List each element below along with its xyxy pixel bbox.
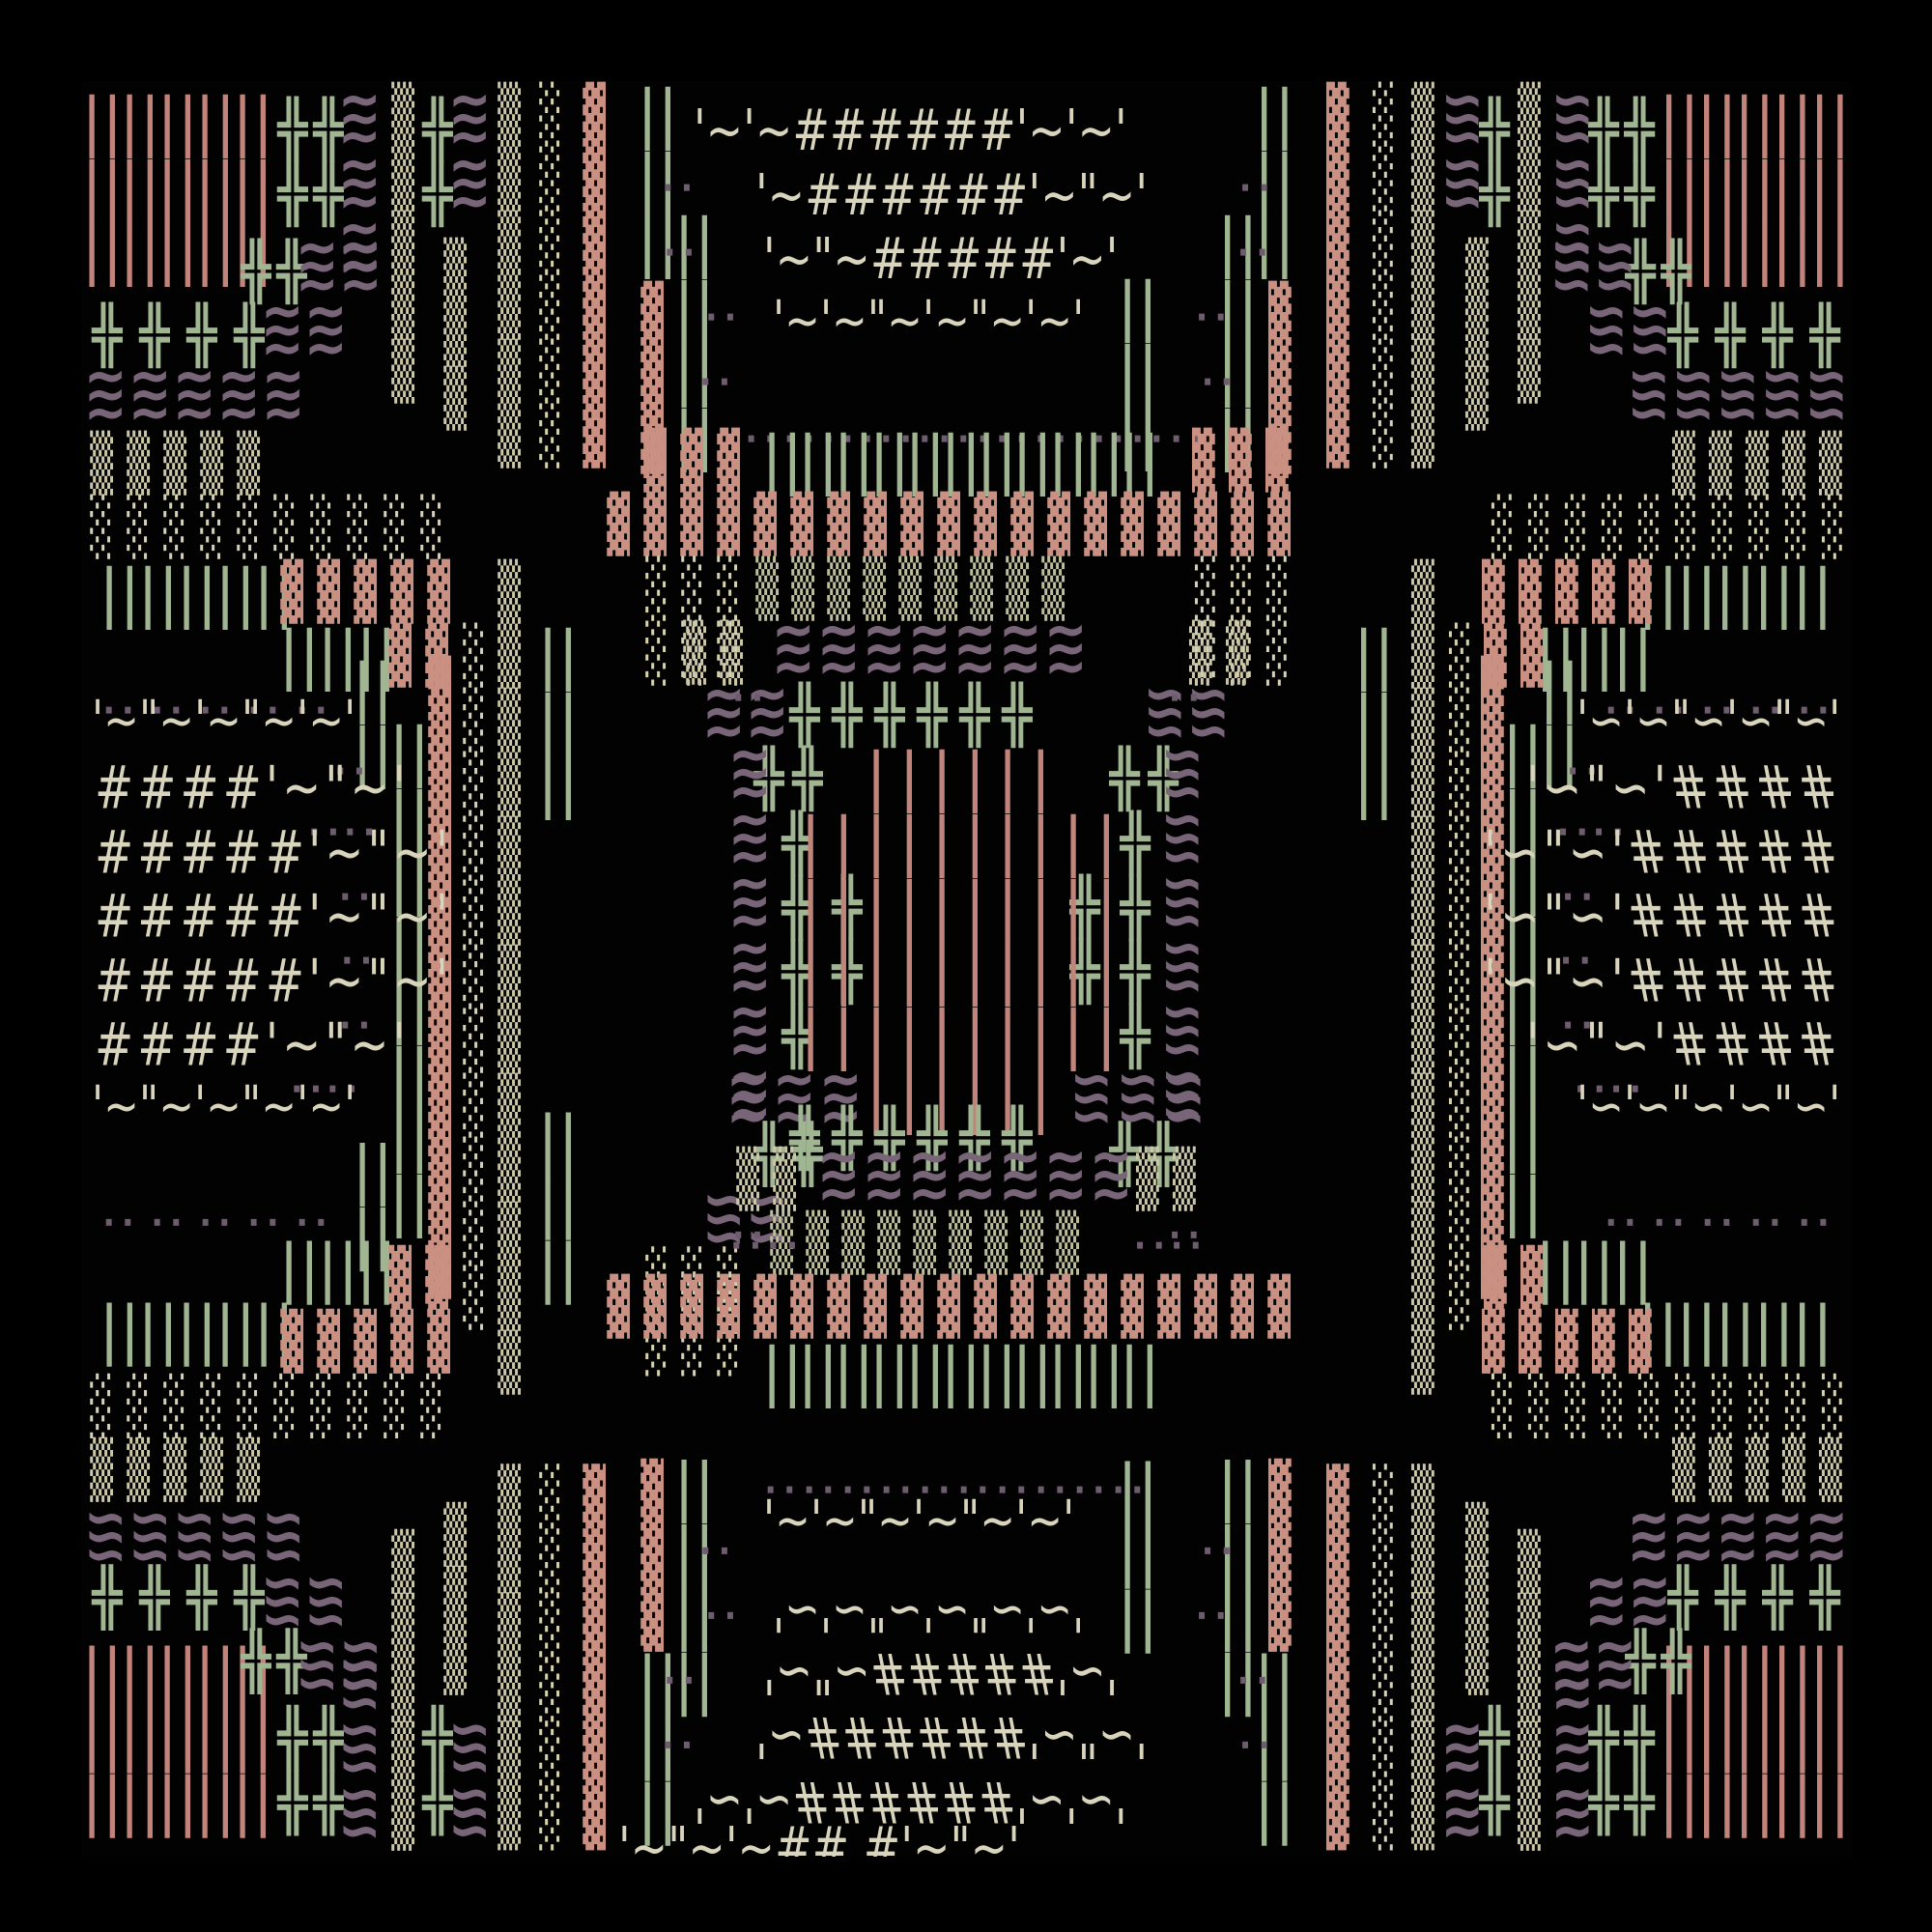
bottom-extra-quote-row: '~'~"~'~"~'~' xyxy=(763,1490,1074,1539)
dot-pair-icon: .. xyxy=(1240,1650,1269,1725)
dot-pair-icon: .. xyxy=(193,1192,241,1267)
top-text-row-3: '~"~#####'~' xyxy=(763,225,1118,277)
corner-wave-col-b: ~~~~~~ xyxy=(446,91,493,219)
band-green-row-mxy: |||||||||| xyxy=(1638,1306,1832,1371)
double-bar-icon: || xyxy=(1232,1451,1257,1528)
top-text-row-1: '~'~######'~'~' xyxy=(694,97,1127,149)
dot-pair-icon: .. xyxy=(698,1520,727,1596)
dense-shade-icon: ▓ xyxy=(1325,1452,1356,1528)
light-shade-icon: ░ xyxy=(1258,622,1293,698)
double-bar-icon: || xyxy=(178,562,216,639)
double-bar-icon: || xyxy=(1811,1636,1849,1714)
top-text-row-2-my: '~######'~"~' xyxy=(755,1719,1148,1771)
double-bar-icon: || xyxy=(1049,1341,1085,1418)
band-salmon-row-my: ▓▓▓▓▓ xyxy=(273,1308,457,1373)
center-green-row-bottom: |||||||||||||||||||||| xyxy=(763,1341,1156,1406)
dense-shade-icon: ▓ xyxy=(1114,493,1151,569)
double-cross-icon: ╬ xyxy=(1481,1687,1517,1772)
double-bar-icon: || xyxy=(1754,1293,1793,1371)
dot-pair-icon: .. xyxy=(698,337,727,412)
left-text-quote-bottom: '~"~'~"~'~' xyxy=(92,1075,355,1124)
mid-sparse-col: ░░░░░░░░░░░ xyxy=(456,624,493,1331)
double-bar-icon: || xyxy=(835,1341,870,1418)
mid-dense-col: ▒▒▒▒▒▒▒▒▒▒▒▒▒ xyxy=(491,560,527,1396)
corner-salmon-col-mxy: ▓▓▓▓▓▓ xyxy=(1325,1463,1356,1849)
dot-pair-icon: .. xyxy=(1172,653,1201,728)
dot-pair-icon: .. xyxy=(1242,1715,1271,1790)
left-text-hash-4-mx: #####'~"~' xyxy=(1480,947,1837,1001)
flank-salmon-col-my: ▓▓▓ xyxy=(634,1458,665,1651)
center-dot-bottom-mx: .... xyxy=(1129,1201,1203,1265)
dot-pair-d-mxy: .. xyxy=(1205,1531,1234,1596)
corner-dense-col-b-mx: ▒▒▒▒▒▒ xyxy=(1405,83,1441,469)
dense-shade-icon: ▓ xyxy=(1187,1275,1224,1351)
flank-salmon-col-mxy: ▓▓▓ xyxy=(1267,1458,1298,1651)
dot-pair-b-mx: .. xyxy=(1240,208,1269,272)
corner-wave-row: ~~~~~~~~~~~~~~~ xyxy=(83,367,305,432)
dot-pair-icon: .. xyxy=(1642,1192,1690,1267)
medium-shade-icon: ▒ xyxy=(1511,1517,1548,1593)
band-salmon-row-mxy: ▓▓▓▓▓ xyxy=(1475,1308,1659,1373)
left-text-hash-1: ####'~"~' xyxy=(95,753,410,808)
dot-pair-icon: .. xyxy=(1199,1585,1228,1661)
corner-cross-a: ╬╬╬╬ xyxy=(270,97,342,225)
double-bar-icon: || xyxy=(1368,753,1393,830)
light-shade-icon: ░ xyxy=(532,405,569,481)
triple-wave-icon: ~~~ xyxy=(261,367,305,453)
double-bar-icon: || xyxy=(100,562,139,639)
corner-wave-col-b-mx: ~~~~~~ xyxy=(1439,91,1486,219)
double-bar-icon: || xyxy=(942,1341,978,1418)
double-bar-icon: || xyxy=(158,1636,196,1714)
double-bar-icon: || xyxy=(870,1341,906,1418)
dense-shade-icon: ▓ xyxy=(600,1275,637,1351)
dense-shade-icon: ▓ xyxy=(1224,1275,1261,1351)
dense-shade-icon: ▓ xyxy=(1480,1236,1511,1312)
spaced-bar-icon: || xyxy=(867,746,933,823)
top-text-row-3-my: '~"~#####'~' xyxy=(763,1655,1118,1707)
light-shade-icon: ░ xyxy=(639,622,674,698)
double-cross-icon: ╬ xyxy=(825,682,867,767)
double-bar-icon: || xyxy=(1736,219,1774,297)
flank-green-col-a-mxy: |||||| xyxy=(1268,1657,1293,1850)
triple-wave-icon: ~~~ xyxy=(1584,302,1628,388)
double-bar-icon: || xyxy=(1774,1636,1811,1714)
double-bar-icon: || xyxy=(1736,1636,1774,1714)
band-sparse-row-mxy: ░░░░░░░░░░ xyxy=(1482,1373,1849,1437)
corner-wave-row-mx: ~~~~~~~~~~~~~~~ xyxy=(1627,367,1849,432)
double-bar-icon: || xyxy=(675,1451,700,1528)
corner-salmon-col: ▓▓▓▓▓▓ xyxy=(576,83,607,469)
dot-pair-icon: .. xyxy=(1240,208,1269,283)
dense-shade-icon: ▓ xyxy=(576,405,607,481)
dot-pair-icon: .. xyxy=(1205,337,1234,412)
dot-pair-icon: .. xyxy=(661,143,690,218)
medium-shade-icon: ▒ xyxy=(491,405,527,481)
double-bar-icon: || xyxy=(906,1341,942,1418)
dot-pair-a-mx: .. xyxy=(1242,143,1271,208)
dot-pair-icon: .. xyxy=(290,1192,338,1267)
triple-wave-icon: ~~~ xyxy=(1439,156,1486,241)
left-text-quote-top-mx: '~"~'~"~'~' xyxy=(1577,690,1840,739)
corner-wave-row-mxy: ~~~~~~~~~~~~~~~ xyxy=(1627,1501,1849,1566)
dot-pair-b: .. xyxy=(663,208,692,272)
double-bar-icon: || xyxy=(354,1134,379,1211)
dot-pair-icon: .. xyxy=(704,1585,733,1661)
triple-wave-icon: ~~~ xyxy=(304,302,348,388)
double-bar-icon: || xyxy=(100,1293,139,1371)
dense-shade-icon: ▓ xyxy=(1261,1275,1297,1351)
center-green-row: |||||||||||||||||||||| xyxy=(763,429,1156,494)
corner-wave-col-b-mxy: ~~~~~~ xyxy=(1439,1713,1486,1841)
corner-dense-col-b: ▒▒▒▒▒▒ xyxy=(491,83,527,469)
medium-shade-icon: ▒ xyxy=(1459,1490,1495,1566)
margin-mask-bottom xyxy=(0,1857,1932,1932)
left-text-hash-3-mx: #####'~"~' xyxy=(1480,882,1837,936)
dot-pair-icon: .. xyxy=(1205,1520,1234,1596)
double-bar-icon: || xyxy=(539,753,564,830)
medium-shade-icon: ▒ xyxy=(1459,367,1495,443)
corner-cross-col-b-mx: ╬╬ xyxy=(1481,97,1517,225)
dot-pair-b-my: .. xyxy=(663,1661,692,1725)
dot-pair-c-my: .. xyxy=(704,1596,733,1661)
band-dense-row: ▒▒▒▒▒ xyxy=(83,432,267,497)
dot-pair-d: .. xyxy=(698,337,727,402)
band-sparse-row-my: ░░░░░░░░░░ xyxy=(83,1373,450,1437)
dot-pair-icon: .. xyxy=(1072,1445,1111,1520)
dot-pair-icon: .. xyxy=(1166,1201,1203,1276)
double-bar-icon: || xyxy=(196,1636,234,1714)
dot-pair-a-my: .. xyxy=(661,1725,690,1790)
left-text-hash-1-mx: ####'~"~' xyxy=(1522,753,1837,808)
triple-wave-icon: ~~~ xyxy=(1439,1691,1486,1777)
band-dense-row-my: ▒▒▒▒▒ xyxy=(83,1436,267,1501)
mid-green-col-e-my: |||||| xyxy=(539,1116,564,1309)
left-text-hash-5-mx: ####'~"~' xyxy=(1522,1010,1837,1065)
light-shade-icon: ░ xyxy=(532,1452,569,1528)
dot-pair-icon: .. xyxy=(661,1715,690,1790)
double-bar-icon: || xyxy=(139,1293,178,1371)
mid-green-col-e: |||||| xyxy=(539,624,564,817)
spaced-bar-icon: || xyxy=(999,746,1065,823)
dot-pair-b-mxy: .. xyxy=(1240,1661,1269,1725)
triple-wave-icon: ~~~ xyxy=(1584,1545,1628,1631)
double-bar-icon: || xyxy=(158,219,196,297)
medium-shade-icon: ▒ xyxy=(384,1517,421,1593)
medium-shade-icon: ▒ xyxy=(437,367,473,443)
dense-shade-icon: ▓ xyxy=(1151,493,1187,569)
center-wave-band: ~~~~~~~~~~~~~~~~~~~~~ xyxy=(771,621,1089,686)
double-bar-icon: || xyxy=(1754,562,1793,639)
center-dot-pair-mx: .. xyxy=(1172,653,1201,718)
margin-mask-left xyxy=(0,0,81,1932)
double-bar-icon: || xyxy=(83,1636,121,1714)
corner-dense-col-b-mxy: ▒▒▒▒▒▒ xyxy=(1405,1463,1441,1849)
top-text-row-4: '~'~"~'~"~'~' xyxy=(773,290,1084,339)
center-salmon-flank-mx: ▓▓▓ xyxy=(1185,429,1295,494)
corner-dense-bit: ▒▒▒ xyxy=(437,239,473,432)
medium-shade-icon: ▒ xyxy=(1405,1452,1441,1528)
margin-mask-top xyxy=(0,0,1932,81)
dense-shade-icon: ▓ xyxy=(600,493,637,569)
double-bar-icon: || xyxy=(1085,1341,1121,1418)
dot-pair-icon: .. xyxy=(731,653,760,728)
dense-shade-icon: ▓ xyxy=(576,1452,607,1528)
medium-shade-icon: ▒ xyxy=(491,1331,527,1407)
corner-salmon-col-my: ▓▓▓▓▓▓ xyxy=(576,1463,607,1849)
center-bars-top: |||||| xyxy=(867,746,1065,810)
triple-wave-icon: ~~~ xyxy=(446,156,493,241)
center-cross-row: ╬╬╬╬╬╬ xyxy=(782,682,1037,747)
center-salmon-flank: ▓▓▓ xyxy=(637,429,747,494)
corner-wave-col-b-my: ~~~~~~ xyxy=(446,1713,493,1841)
dense-shade-icon: ▓ xyxy=(637,1275,673,1351)
band-green-row-my: |||||||||| xyxy=(100,1306,294,1371)
dot-pair-d-my: .. xyxy=(698,1531,727,1596)
corner-dense-bit-my: ▒▒▒ xyxy=(437,1501,473,1694)
top-text-row-4-my: '~'~"~'~"~'~' xyxy=(773,1593,1084,1642)
double-bar-icon: || xyxy=(216,1293,255,1371)
left-text-hash-3: #####'~"~' xyxy=(95,882,452,936)
corner-cross-a-mx: ╬╬╬╬ xyxy=(1590,97,1662,225)
dot-pair-a: .. xyxy=(661,143,690,208)
double-bar-icon: || xyxy=(390,1171,415,1248)
double-bar-icon: || xyxy=(1013,1341,1049,1418)
corner-sparse-col-mxy: ░░░░░░ xyxy=(1363,1463,1400,1849)
medium-shade-icon: ▒ xyxy=(491,1452,527,1528)
mid-green-col-e-mx: |||||| xyxy=(1368,624,1393,817)
left-text-hash-4: #####'~"~' xyxy=(95,947,452,1001)
dot-pair-icon: .. xyxy=(1242,143,1271,218)
double-bar-icon: || xyxy=(1774,219,1811,297)
medium-shade-icon: ▒ xyxy=(384,340,421,416)
band-dense-row-mxy: ▒▒▒▒▒ xyxy=(1665,1436,1849,1501)
light-shade-icon: ░ xyxy=(456,1266,493,1343)
band-green-row-mx: |||||||||| xyxy=(1638,562,1832,627)
dot-pair-icon: .. xyxy=(766,1201,803,1276)
corner-sparse-col-mx: ░░░░░░ xyxy=(1363,83,1400,469)
medium-shade-icon: ▒ xyxy=(1405,1331,1441,1407)
dot-pair-d-mx: .. xyxy=(1205,337,1234,402)
top-text-row-2: '~######'~"~' xyxy=(755,161,1148,213)
double-bar-icon: || xyxy=(1716,562,1754,639)
double-bar-icon: || xyxy=(1677,1293,1716,1371)
light-shade-icon: ░ xyxy=(1363,1452,1400,1528)
band-sparse-row: ░░░░░░░░░░ xyxy=(83,496,450,560)
ascii-quilt-artwork: generative ascii textile quilt pattern |… xyxy=(0,0,1932,1932)
mid-green-col-c-my: |||| xyxy=(354,1147,379,1275)
dot-pair-icon: .. xyxy=(1787,1192,1835,1267)
dense-shade-icon: ▓ xyxy=(1325,405,1356,481)
dot-pair-c-mxy: .. xyxy=(1199,1596,1228,1661)
flank-green-col-a-mx: |||||| xyxy=(1268,83,1293,276)
light-shade-icon: ░ xyxy=(1439,1266,1476,1343)
band-green-row: |||||||||| xyxy=(100,562,294,627)
band-salmon-row: ▓▓▓▓▓ xyxy=(273,560,457,625)
double-bar-icon: || xyxy=(1793,562,1832,639)
corner-sparse-col: ░░░░░░ xyxy=(532,83,569,469)
mid-sparse-col-mx: ░░░░░░░░░░░ xyxy=(1439,624,1476,1331)
double-bar-icon: || xyxy=(799,1341,835,1418)
double-bar-icon: || xyxy=(1716,1293,1754,1371)
text-dot-row-mxy: .......... xyxy=(1594,1203,1835,1267)
dot-pair-icon: .. xyxy=(97,1192,145,1267)
double-bar-icon: || xyxy=(121,219,158,297)
double-bar-icon: || xyxy=(196,219,234,297)
dense-shade-icon: ▓ xyxy=(673,1275,710,1351)
dot-pair-icon: .. xyxy=(1594,1192,1642,1267)
dense-shade-icon: ▓ xyxy=(634,1446,665,1522)
double-bar-icon: || xyxy=(1811,219,1849,297)
center-salmon-band-bottom: ▓▓▓▓▓▓▓▓▓▓▓▓▓▓▓▓▓▓▓ xyxy=(600,1275,1297,1340)
text-dot-row-my: .......... xyxy=(97,1203,338,1267)
dot-pair-icon: .. xyxy=(1199,272,1228,348)
center-wave-band-bottom: ~~~~~~~~~~~~~~~~~~~~~ xyxy=(816,1148,1134,1212)
medium-shade-icon: ▒ xyxy=(1405,405,1441,481)
dot-pair-icon: .. xyxy=(241,1192,290,1267)
center-salmon-band: ▓▓▓▓▓▓▓▓▓▓▓▓▓▓▓▓▓▓▓ xyxy=(600,493,1297,557)
double-bar-icon: || xyxy=(763,1341,799,1418)
double-bar-icon: || xyxy=(121,1636,158,1714)
dot-pair-c: .. xyxy=(704,272,733,337)
double-bar-icon: || xyxy=(1677,562,1716,639)
dense-shade-icon: ▓ xyxy=(1077,493,1114,569)
band-salmon-row-mx: ▓▓▓▓▓ xyxy=(1475,560,1659,625)
dot-pair-a-mxy: .. xyxy=(1242,1725,1271,1790)
dense-shade-icon: ▓ xyxy=(1267,1446,1298,1522)
double-bar-icon: || xyxy=(1517,1171,1542,1248)
band-sparse-row-mx: ░░░░░░░░░░ xyxy=(1482,496,1849,560)
double-bar-icon: || xyxy=(1698,1636,1736,1714)
dot-pair-icon: .. xyxy=(1739,1192,1787,1267)
corner-cross-a-my: ╬╬╬╬ xyxy=(270,1707,342,1835)
double-bar-icon: || xyxy=(216,562,255,639)
center-dot-bottom: .... xyxy=(729,1201,803,1265)
corner-salmon-col-mx: ▓▓▓▓▓▓ xyxy=(1325,83,1356,469)
triple-wave-icon: ~~~ xyxy=(446,1691,493,1777)
double-bar-icon: || xyxy=(178,1293,216,1371)
corner-cross-a-mxy: ╬╬╬╬ xyxy=(1590,1707,1662,1835)
left-text-hash-2-mx: #####'~"~' xyxy=(1480,818,1837,872)
corner-sparse-col-my: ░░░░░░ xyxy=(532,1463,569,1849)
corner-dense-bit-mxy: ▒▒▒ xyxy=(1459,1501,1495,1694)
left-text-quote-top: '~"~'~"~'~' xyxy=(92,690,355,739)
spaced-bar-icon: || xyxy=(933,746,999,823)
center-sage-band-bottom: ▒▒▒▒▒▒▒▒▒ xyxy=(763,1211,1085,1276)
triple-wave-icon: ~~~ xyxy=(1043,621,1089,707)
band-dense-row-mx: ▒▒▒▒▒ xyxy=(1665,432,1849,497)
center-dot-pair: .. xyxy=(731,653,760,718)
center-wave-corner-mx: ~~~~~~~~~ xyxy=(1068,1070,1207,1135)
left-text-hash-5: ####'~"~' xyxy=(95,1010,410,1065)
corner-dense-col-b-my: ▒▒▒▒▒▒ xyxy=(491,1463,527,1849)
dot-pair-icon: .. xyxy=(704,272,733,348)
dot-pair-icon: .. xyxy=(663,1650,692,1725)
dense-shade-icon: ▓ xyxy=(421,1236,452,1312)
double-bar-icon: || xyxy=(139,562,178,639)
left-text-hash-2: #####'~"~' xyxy=(95,818,452,872)
dot-pair-icon: .. xyxy=(1111,1445,1150,1520)
dot-pair-icon: .. xyxy=(145,1192,193,1267)
dot-pair-icon: .. xyxy=(663,208,692,283)
medium-shade-icon: ▒ xyxy=(1511,340,1548,416)
double-bar-icon: || xyxy=(1793,1293,1832,1371)
corner-cross-col-b-mxy: ╬╬ xyxy=(1481,1707,1517,1835)
dot-pair-icon: .. xyxy=(1129,1201,1166,1276)
light-shade-icon: ░ xyxy=(1363,405,1400,481)
dot-pair-icon: .. xyxy=(1690,1192,1739,1267)
corner-wave-row-my: ~~~~~~~~~~~~~~~ xyxy=(83,1501,305,1566)
center-bars: |||||||||||||||||||||||||||||||||||||||| xyxy=(802,810,1130,1067)
dense-shade-icon: ▓ xyxy=(710,1275,747,1351)
mid-dense-col-mx: ▒▒▒▒▒▒▒▒▒▒▒▒▒ xyxy=(1405,560,1441,1396)
double-bar-icon: || xyxy=(83,219,121,297)
double-bar-icon: || xyxy=(978,1341,1013,1418)
triple-wave-icon: ~~~ xyxy=(261,1480,305,1566)
medium-shade-icon: ▒ xyxy=(437,1490,473,1566)
left-text-quote-bottom-mx: '~"~'~"~'~' xyxy=(1577,1075,1840,1124)
dot-pair-c-mx: .. xyxy=(1199,272,1228,337)
double-bar-icon: || xyxy=(539,1103,564,1180)
double-bar-icon: || xyxy=(1121,1341,1156,1418)
double-bar-icon: || xyxy=(1698,219,1736,297)
dot-pair-icon: .. xyxy=(729,1201,766,1276)
triple-wave-icon: ~~~ xyxy=(304,1545,348,1631)
margin-mask-right xyxy=(1852,0,1932,1932)
corner-dense-bit-mx: ▒▒▒ xyxy=(1459,239,1495,432)
